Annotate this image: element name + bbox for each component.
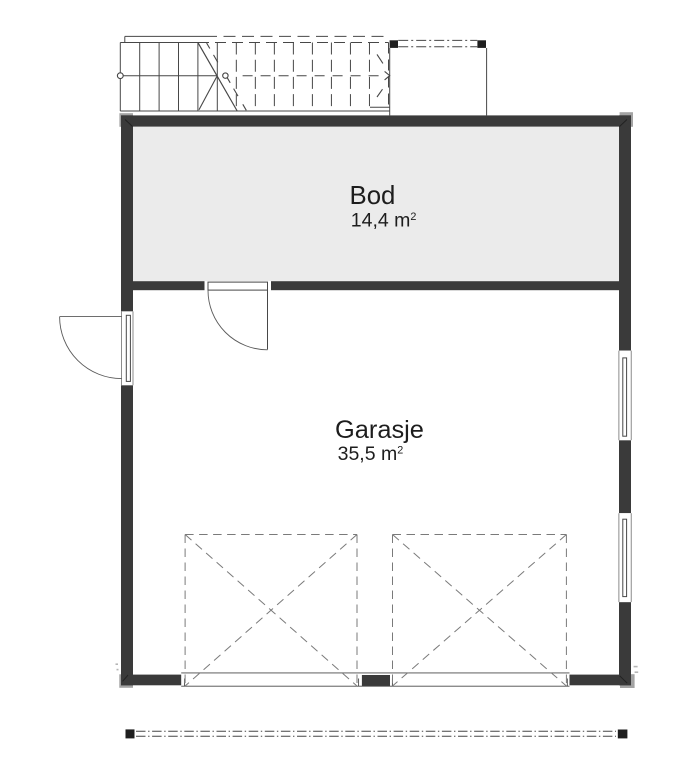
svg-text:Garasje: Garasje	[335, 416, 424, 444]
svg-text:14,4 m2: 14,4 m2	[351, 209, 417, 231]
svg-text:Bod: Bod	[350, 182, 396, 210]
svg-text:35,5 m2: 35,5 m2	[338, 443, 404, 465]
